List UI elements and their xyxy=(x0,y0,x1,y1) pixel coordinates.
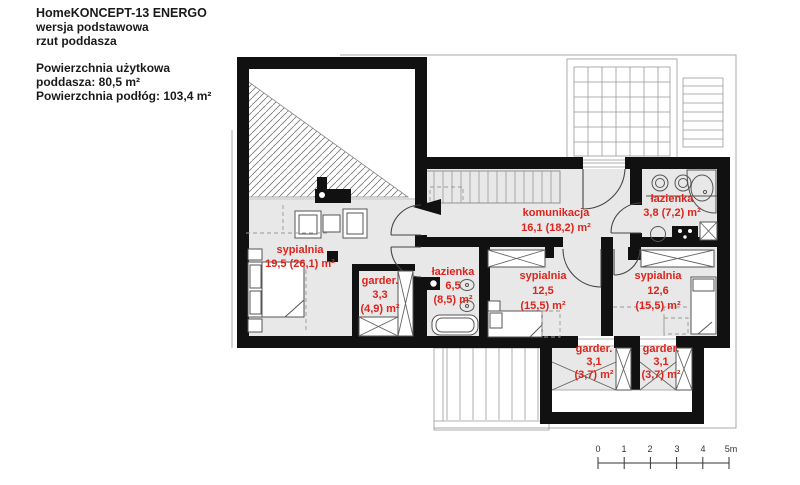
usable-area-value: poddasza: 80,5 m² xyxy=(36,75,211,89)
svg-text:19,5 (26,1) m²: 19,5 (26,1) m² xyxy=(265,258,335,270)
svg-text:16,1 (18,2) m²: 16,1 (18,2) m² xyxy=(521,222,591,234)
svg-text:12,6: 12,6 xyxy=(647,285,668,297)
armchair-icon xyxy=(295,211,321,238)
svg-text:garder.: garder. xyxy=(576,343,613,355)
svg-text:(15,5) m²: (15,5) m² xyxy=(520,300,566,312)
floor-name: rzut poddasza xyxy=(36,34,211,48)
scale-tick-label: 2 xyxy=(647,444,652,454)
svg-text:komunikacja: komunikacja xyxy=(523,207,591,219)
nightstand xyxy=(248,249,262,260)
svg-text:12,5: 12,5 xyxy=(532,285,553,297)
washer-icon xyxy=(672,226,698,242)
title-block: HomeKONCEPT-13 ENERGO wersja podstawowa … xyxy=(36,6,211,103)
scale-tick-label: 0 xyxy=(595,444,600,454)
svg-text:3,1: 3,1 xyxy=(586,356,601,368)
armchair-icon xyxy=(343,209,367,238)
bed-icon xyxy=(248,262,304,317)
pillar xyxy=(545,247,554,258)
svg-text:6,5: 6,5 xyxy=(445,280,460,292)
svg-text:sypialnia: sypialnia xyxy=(519,270,567,282)
floor-plan-page: HomeKONCEPT-13 ENERGO wersja podstawowa … xyxy=(0,0,800,485)
roof-lower xyxy=(434,348,549,430)
project-version: wersja podstawowa xyxy=(36,20,211,34)
svg-text:łazienka: łazienka xyxy=(651,193,695,205)
wardrobe-icon xyxy=(700,222,717,240)
side-table xyxy=(323,215,340,232)
svg-text:łazienka: łazienka xyxy=(432,266,476,278)
svg-text:garder.: garder. xyxy=(362,275,399,287)
usable-area-label: Powierzchnia użytkowa xyxy=(36,61,211,75)
duct xyxy=(427,277,440,290)
nightstand xyxy=(248,319,262,332)
scale-tick-label: 1 xyxy=(621,444,626,454)
svg-text:garder.: garder. xyxy=(643,343,680,355)
skylight-grid xyxy=(567,59,677,163)
svg-text:sypialnia: sypialnia xyxy=(634,270,682,282)
bed-icon xyxy=(691,277,716,334)
svg-text:3,3: 3,3 xyxy=(372,289,387,301)
svg-text:sypialnia: sypialnia xyxy=(276,244,324,256)
scale-tick-label: 5m xyxy=(725,444,738,454)
svg-text:(3,7) m²: (3,7) m² xyxy=(574,369,613,381)
void-area xyxy=(246,64,415,203)
svg-text:3,1: 3,1 xyxy=(653,356,668,368)
scale-tick-label: 4 xyxy=(700,444,705,454)
svg-text:(4,9) m²: (4,9) m² xyxy=(360,303,399,315)
wardrobe-icon xyxy=(641,250,714,267)
scale-tick-label: 3 xyxy=(674,444,679,454)
project-title: HomeKONCEPT-13 ENERGO xyxy=(36,6,211,20)
wardrobe-icon xyxy=(488,250,545,267)
scale-bar: 0 1 2 3 4 5m xyxy=(595,444,737,469)
pillar xyxy=(628,247,641,260)
roof-panel-right xyxy=(683,78,723,147)
svg-text:(3,7) m²: (3,7) m² xyxy=(641,369,680,381)
svg-text:(8,5) m²: (8,5) m² xyxy=(433,294,472,306)
svg-text:3,8 (7,2) m²: 3,8 (7,2) m² xyxy=(643,207,701,219)
floor-area-value: Powierzchnia podłóg: 103,4 m² xyxy=(36,89,211,103)
bathtub-icon xyxy=(432,315,478,335)
svg-text:(15,5) m²: (15,5) m² xyxy=(635,300,681,312)
